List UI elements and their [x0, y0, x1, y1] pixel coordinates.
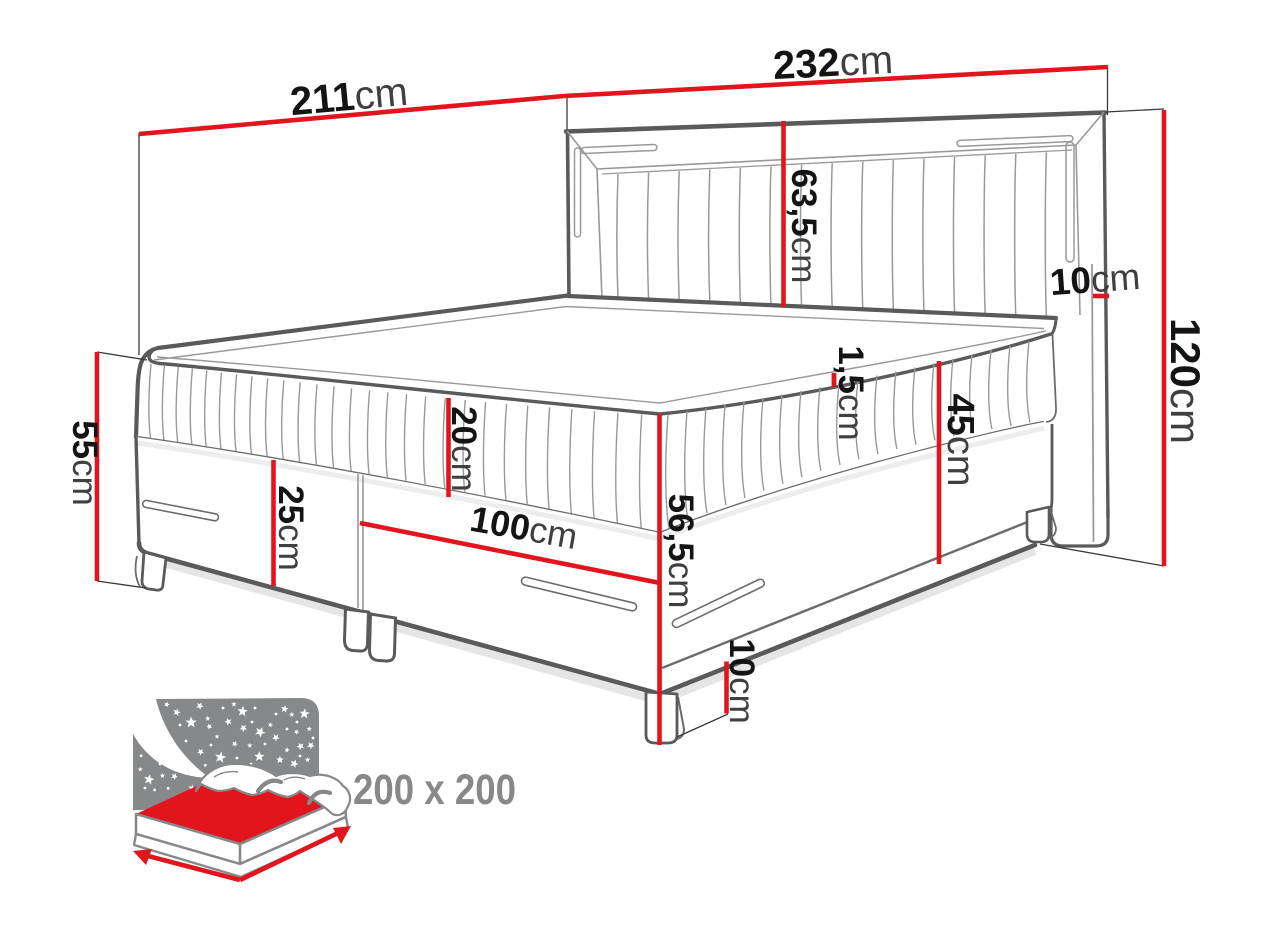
svg-text:55cm: 55cm	[66, 420, 105, 506]
svg-text:120cm: 120cm	[1163, 318, 1210, 444]
svg-text:56,5cm: 56,5cm	[662, 494, 701, 609]
svg-text:211cm: 211cm	[288, 70, 409, 125]
svg-text:10cm: 10cm	[723, 638, 762, 724]
svg-text:25cm: 25cm	[272, 485, 311, 571]
svg-text:45cm: 45cm	[939, 394, 981, 487]
svg-text:63,5cm: 63,5cm	[785, 169, 824, 284]
svg-text:20cm: 20cm	[445, 406, 484, 492]
svg-text:1,5cm: 1,5cm	[832, 345, 871, 440]
svg-text:232cm: 232cm	[772, 38, 894, 88]
svg-text:200 x 200: 200 x 200	[353, 766, 516, 814]
svg-text:10cm: 10cm	[1048, 255, 1141, 302]
